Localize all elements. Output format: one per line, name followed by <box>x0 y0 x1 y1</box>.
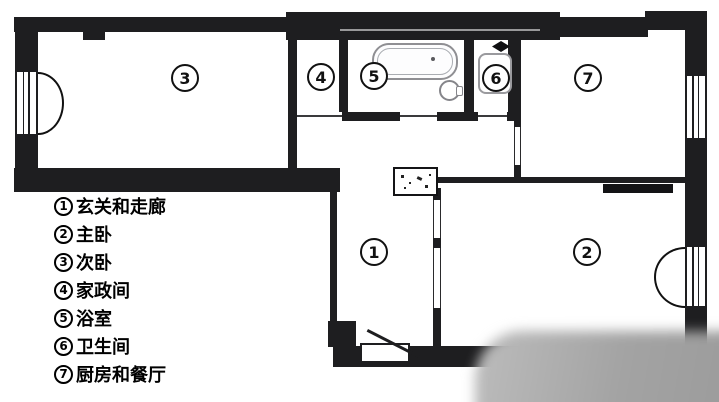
legend-item-2: 2 主卧 <box>54 220 166 248</box>
room-marker-4: 4 <box>307 63 335 91</box>
hall-top-wall-b <box>437 112 478 121</box>
kitchen-door-opening <box>514 127 521 165</box>
room-marker-2-num: 2 <box>581 243 592 262</box>
legend-num-7: 7 <box>54 365 73 384</box>
wall-room7-room2 <box>437 177 687 183</box>
legend-label-4: 家政间 <box>76 277 130 303</box>
legend-item-1: 1 玄关和走廊 <box>54 192 166 220</box>
room4-door-opening <box>297 112 342 121</box>
legend-label-6: 卫生间 <box>76 333 130 359</box>
room-marker-4-num: 4 <box>315 68 326 87</box>
top-wall-right-step <box>645 11 707 30</box>
room2-opening-upper <box>433 200 441 238</box>
bedroom3-balcony-window <box>15 70 38 136</box>
legend-num-5: 5 <box>54 309 73 328</box>
wall-room5-room6 <box>464 40 474 114</box>
top-wall-kitchen <box>540 17 648 37</box>
room-marker-5: 5 <box>360 62 388 90</box>
wall-room4-room5 <box>339 40 348 114</box>
bedroom2-door-leaf-upper <box>654 247 685 277</box>
right-wall-middle <box>685 140 707 245</box>
radiator <box>603 184 673 193</box>
legend-label-1: 玄关和走廊 <box>76 193 166 219</box>
room6-door-opening <box>478 112 507 121</box>
room-marker-6: 6 <box>482 64 510 92</box>
room-marker-5-num: 5 <box>368 67 379 86</box>
hall-top-wall-a <box>342 112 400 121</box>
room-marker-6-num: 6 <box>490 69 501 88</box>
legend-num-2: 2 <box>54 225 73 244</box>
top-wall-left <box>14 17 308 32</box>
room-marker-2: 2 <box>573 238 601 266</box>
entry-wall-step <box>328 321 356 347</box>
legend-item-6: 6 卫生间 <box>54 332 166 360</box>
bedroom3-bottom-wall <box>14 168 340 192</box>
wall-room3-room4 <box>288 40 297 170</box>
legend-item-3: 3 次卧 <box>54 248 166 276</box>
room-marker-7-num: 7 <box>582 69 593 88</box>
hall-top-wall-c <box>507 112 521 121</box>
wall-room1-room2-b <box>433 238 441 248</box>
room-marker-7: 7 <box>574 64 602 92</box>
left-wall-upper <box>15 17 38 70</box>
watermark-blur-blob <box>475 331 719 402</box>
top-wall-seam <box>340 29 558 31</box>
kitchen-window <box>685 74 707 140</box>
legend-label-2: 主卧 <box>76 221 112 247</box>
bedroom3-door-leaf-lower <box>38 103 64 135</box>
washbasin-tap-icon <box>456 86 463 96</box>
bedroom3-door-leaf-upper <box>38 72 64 103</box>
right-wall-upper <box>685 30 707 74</box>
legend-num-6: 6 <box>54 337 73 356</box>
room5-door-opening <box>400 112 437 121</box>
bedroom3-wall-stub <box>83 29 105 40</box>
legend-item-5: 5 浴室 <box>54 304 166 332</box>
legend-num-1: 1 <box>54 197 73 216</box>
bedroom2-door-leaf-lower <box>654 277 685 308</box>
legend-num-3: 3 <box>54 253 73 272</box>
room2-opening-lower <box>433 248 441 308</box>
legend: 1 玄关和走廊 2 主卧 3 次卧 4 家政间 5 浴室 6 卫生间 7 厨房和… <box>54 192 166 388</box>
room-marker-3: 3 <box>171 64 199 92</box>
room-marker-1: 1 <box>360 238 388 266</box>
legend-label-7: 厨房和餐厅 <box>76 361 166 387</box>
legend-item-7: 7 厨房和餐厅 <box>54 360 166 388</box>
legend-num-4: 4 <box>54 281 73 300</box>
bedroom2-balcony-window <box>685 245 707 308</box>
room-marker-1-num: 1 <box>368 243 379 262</box>
room-marker-3-num: 3 <box>179 69 190 88</box>
legend-item-4: 4 家政间 <box>54 276 166 304</box>
top-wall-middle-band <box>286 12 560 40</box>
pipe-shaft <box>393 167 438 196</box>
legend-label-3: 次卧 <box>76 249 112 275</box>
corridor-left-wall <box>330 192 337 322</box>
floor-plan: 1 2 3 4 5 6 7 1 玄关和走廊 2 主卧 3 次卧 4 家政间 5 … <box>0 0 719 402</box>
legend-label-5: 浴室 <box>76 305 112 331</box>
